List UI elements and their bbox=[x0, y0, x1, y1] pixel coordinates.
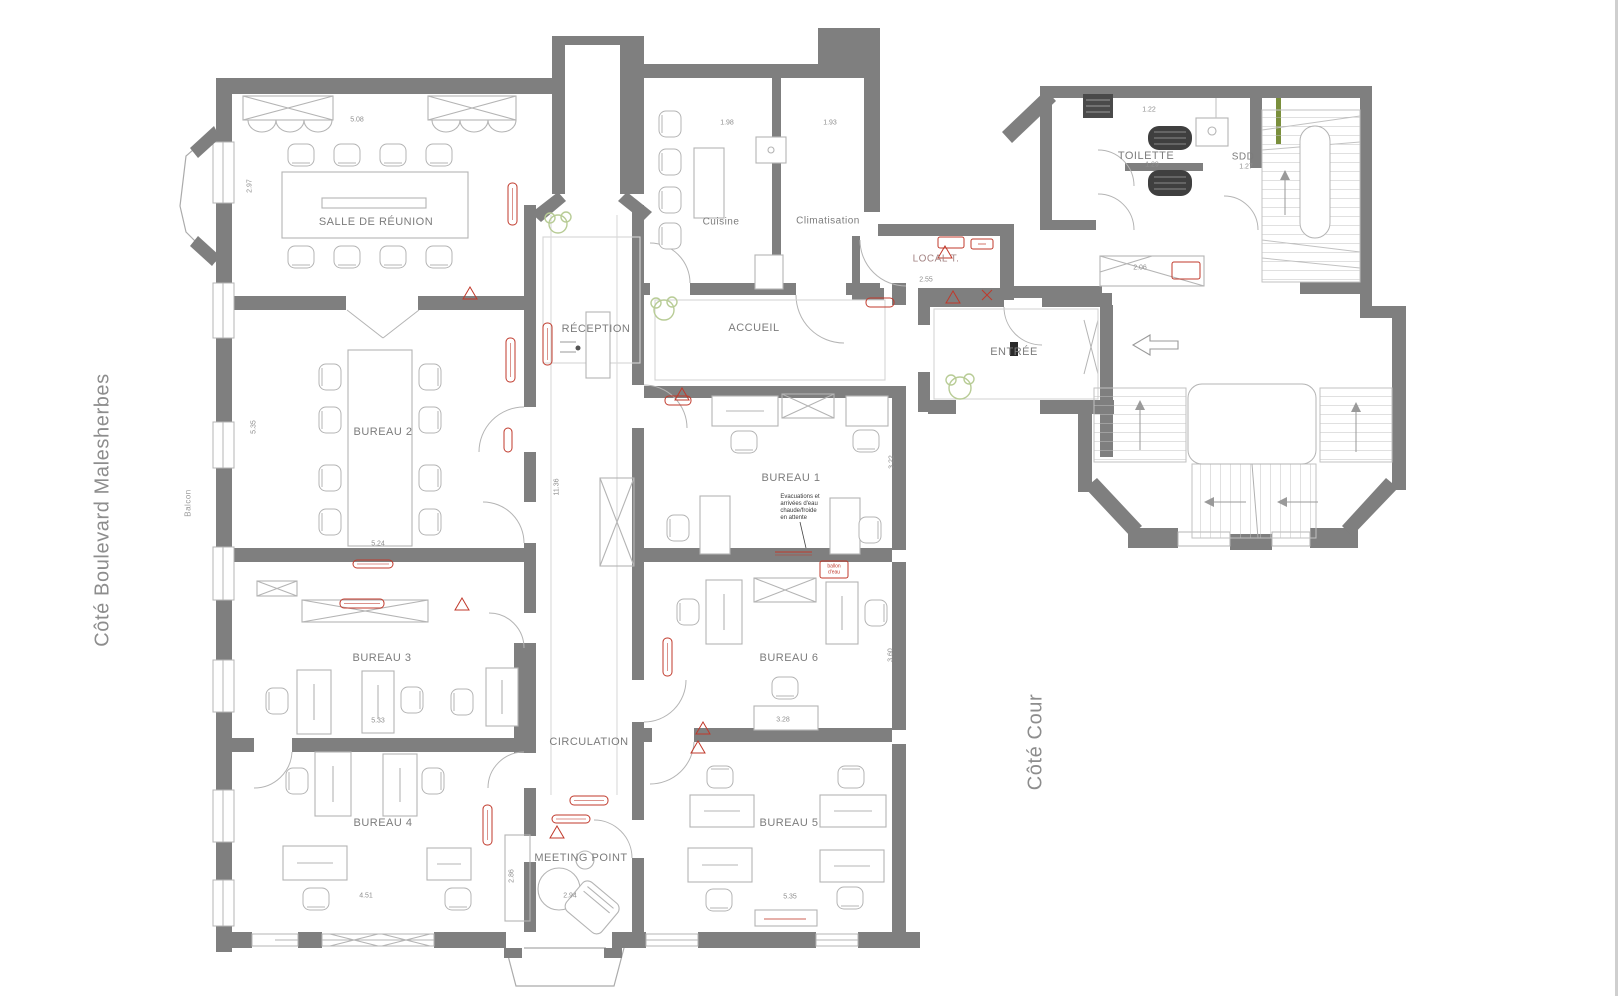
bureau2-table bbox=[348, 350, 412, 546]
dimension-label: 2.97 bbox=[247, 179, 254, 193]
reception-desk bbox=[586, 312, 610, 378]
dimension-label: 4.51 bbox=[359, 893, 373, 900]
dimension-label: 1.93 bbox=[823, 120, 837, 127]
dimension-label: 2.94 bbox=[563, 893, 577, 900]
dimension-label: 2.06 bbox=[1133, 265, 1147, 272]
floor-plan-page: Côté Boulevard Malesherbes Côté Cour Bal… bbox=[0, 0, 1620, 996]
dimension-label: 3.60 bbox=[888, 648, 895, 662]
dimension-label: 2.86 bbox=[509, 869, 516, 883]
dimension-label: 5.24 bbox=[371, 541, 385, 548]
dimension-label: 3.28 bbox=[776, 717, 790, 724]
note-leader-line bbox=[800, 522, 806, 548]
dimension-label: 1.22 bbox=[1142, 107, 1156, 114]
scan-edge-artifact bbox=[1615, 0, 1618, 996]
dimension-label: 11.36 bbox=[554, 479, 561, 496]
dimension-label: 1.27 bbox=[1239, 164, 1253, 171]
dimension-label: 5.35 bbox=[783, 894, 797, 901]
dimension-label: 1.29 bbox=[1145, 162, 1159, 169]
bureau1-plumbing-note: Evacuations et arrivées d'eau chaude/fro… bbox=[780, 494, 819, 522]
stair-landing bbox=[1188, 384, 1316, 464]
water-heater-note: ballon d'eau bbox=[827, 565, 840, 576]
dimension-label: 5.35 bbox=[251, 420, 258, 434]
conference-table bbox=[282, 172, 468, 238]
dimension-label: 1.98 bbox=[720, 120, 734, 127]
dimension-label: 2.55 bbox=[919, 277, 933, 284]
stairs bbox=[1094, 110, 1392, 538]
dimension-label: 5.33 bbox=[371, 718, 385, 725]
dimension-label: 3.22 bbox=[889, 455, 896, 469]
dimension-label: 5.08 bbox=[350, 117, 364, 124]
